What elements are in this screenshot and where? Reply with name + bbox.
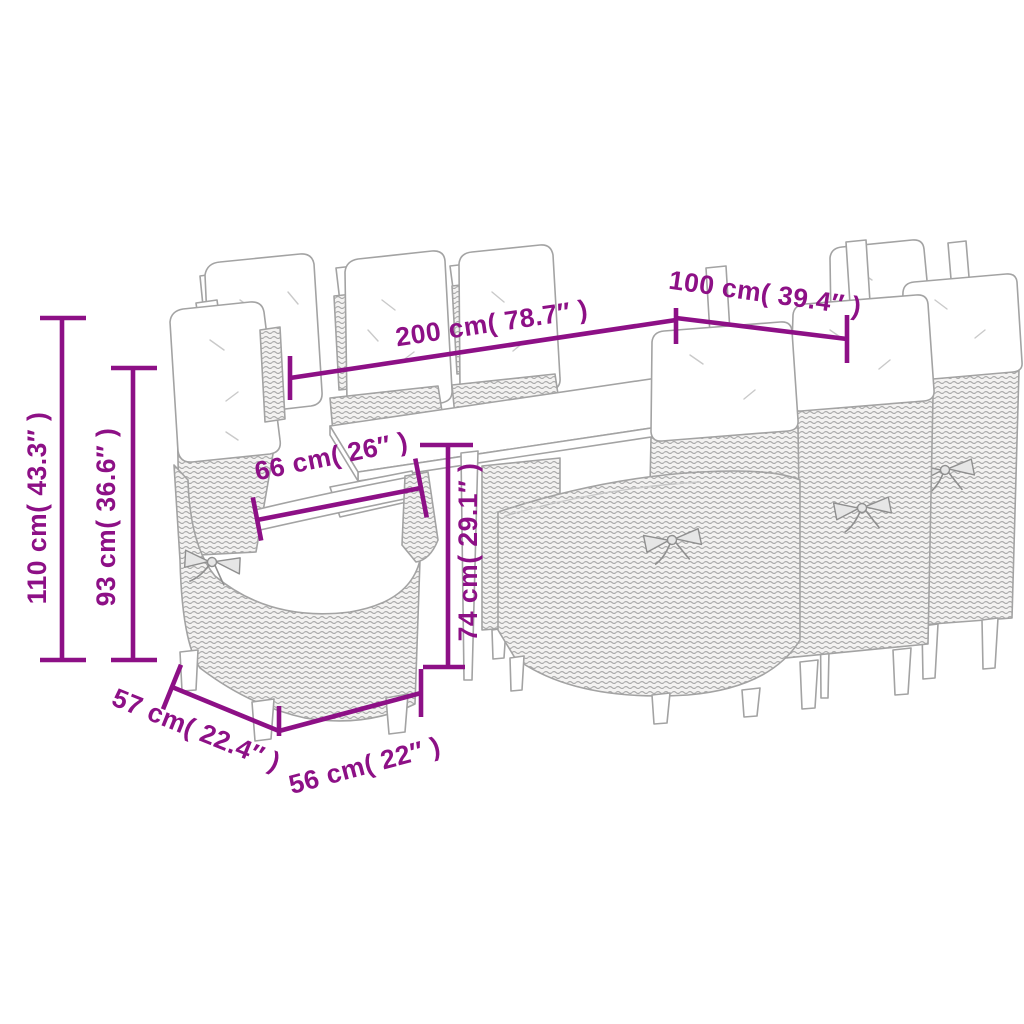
product-dimension-diagram: 200 cm( 78.7″ ) 100 cm( 39.4″ ) 110 cm( … bbox=[0, 0, 1024, 1024]
diagram-canvas: 200 cm( 78.7″ ) 100 cm( 39.4″ ) 110 cm( … bbox=[0, 0, 1024, 1024]
label-chair-back-height: 93 cm( 36.6″ ) bbox=[91, 428, 121, 607]
label-table-height: 74 cm( 29.1″ ) bbox=[453, 463, 483, 642]
label-chair-total-height: 110 cm( 43.3″ ) bbox=[22, 412, 52, 605]
label-chair-width: 56 cm( 22″ ) bbox=[286, 731, 444, 800]
